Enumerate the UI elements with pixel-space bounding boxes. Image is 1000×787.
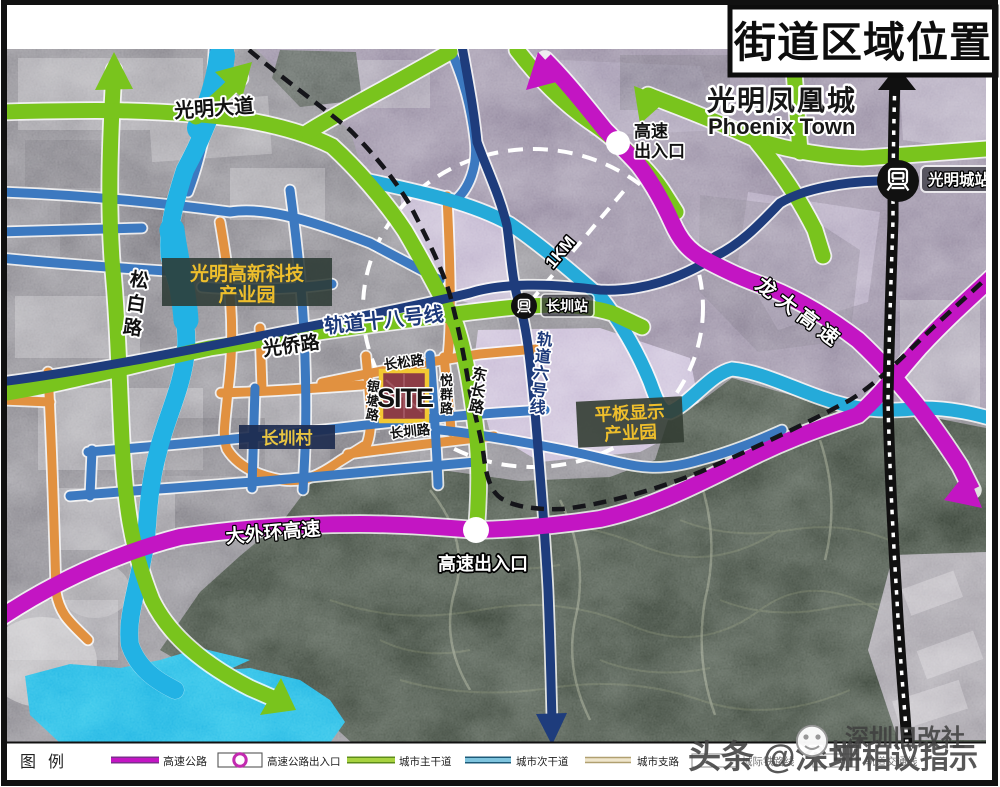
svg-text:产业园: 产业园 — [218, 283, 275, 306]
svg-text:悦群路: 悦群路 — [440, 373, 454, 416]
svg-text:高速: 高速 — [634, 121, 668, 141]
svg-text:街道区域位置: 街道区域位置 — [733, 19, 992, 66]
svg-text:高速公路出入口: 高速公路出入口 — [267, 755, 341, 768]
svg-text:城市次干道: 城市次干道 — [516, 755, 569, 768]
svg-text:图例: 图例 — [20, 753, 76, 771]
svg-text:长圳村: 长圳村 — [262, 428, 313, 448]
svg-text:Phoenix Town: Phoenix Town — [708, 114, 855, 139]
svg-text:产业园: 产业园 — [604, 422, 657, 445]
svg-text:光明凤凰城: 光明凤凰城 — [706, 85, 857, 116]
svg-text:SITE: SITE — [377, 383, 433, 413]
svg-text:平相议指示: 平相议指示 — [833, 742, 978, 775]
svg-text:光明高新科技: 光明高新科技 — [189, 262, 305, 285]
svg-text:城市主干道: 城市主干道 — [399, 755, 452, 768]
svg-text:光明城站: 光明城站 — [927, 170, 991, 189]
svg-text:高速出入口: 高速出入口 — [438, 553, 528, 574]
svg-text:长圳站: 长圳站 — [546, 298, 588, 314]
svg-text:城市支路: 城市支路 — [637, 755, 679, 768]
svg-text:出入口: 出入口 — [634, 141, 685, 161]
svg-text:高速公路: 高速公路 — [163, 754, 207, 768]
